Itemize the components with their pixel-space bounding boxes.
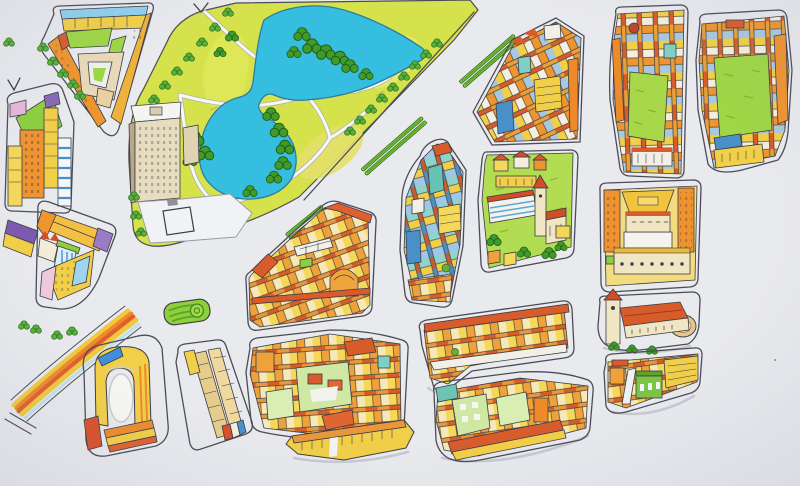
- block-ne-inner: [610, 5, 688, 178]
- palace-block: [600, 180, 701, 292]
- hotel-plaza: [138, 194, 252, 243]
- illustrated-city-map: [0, 0, 800, 486]
- block-ne-outer: [696, 10, 792, 172]
